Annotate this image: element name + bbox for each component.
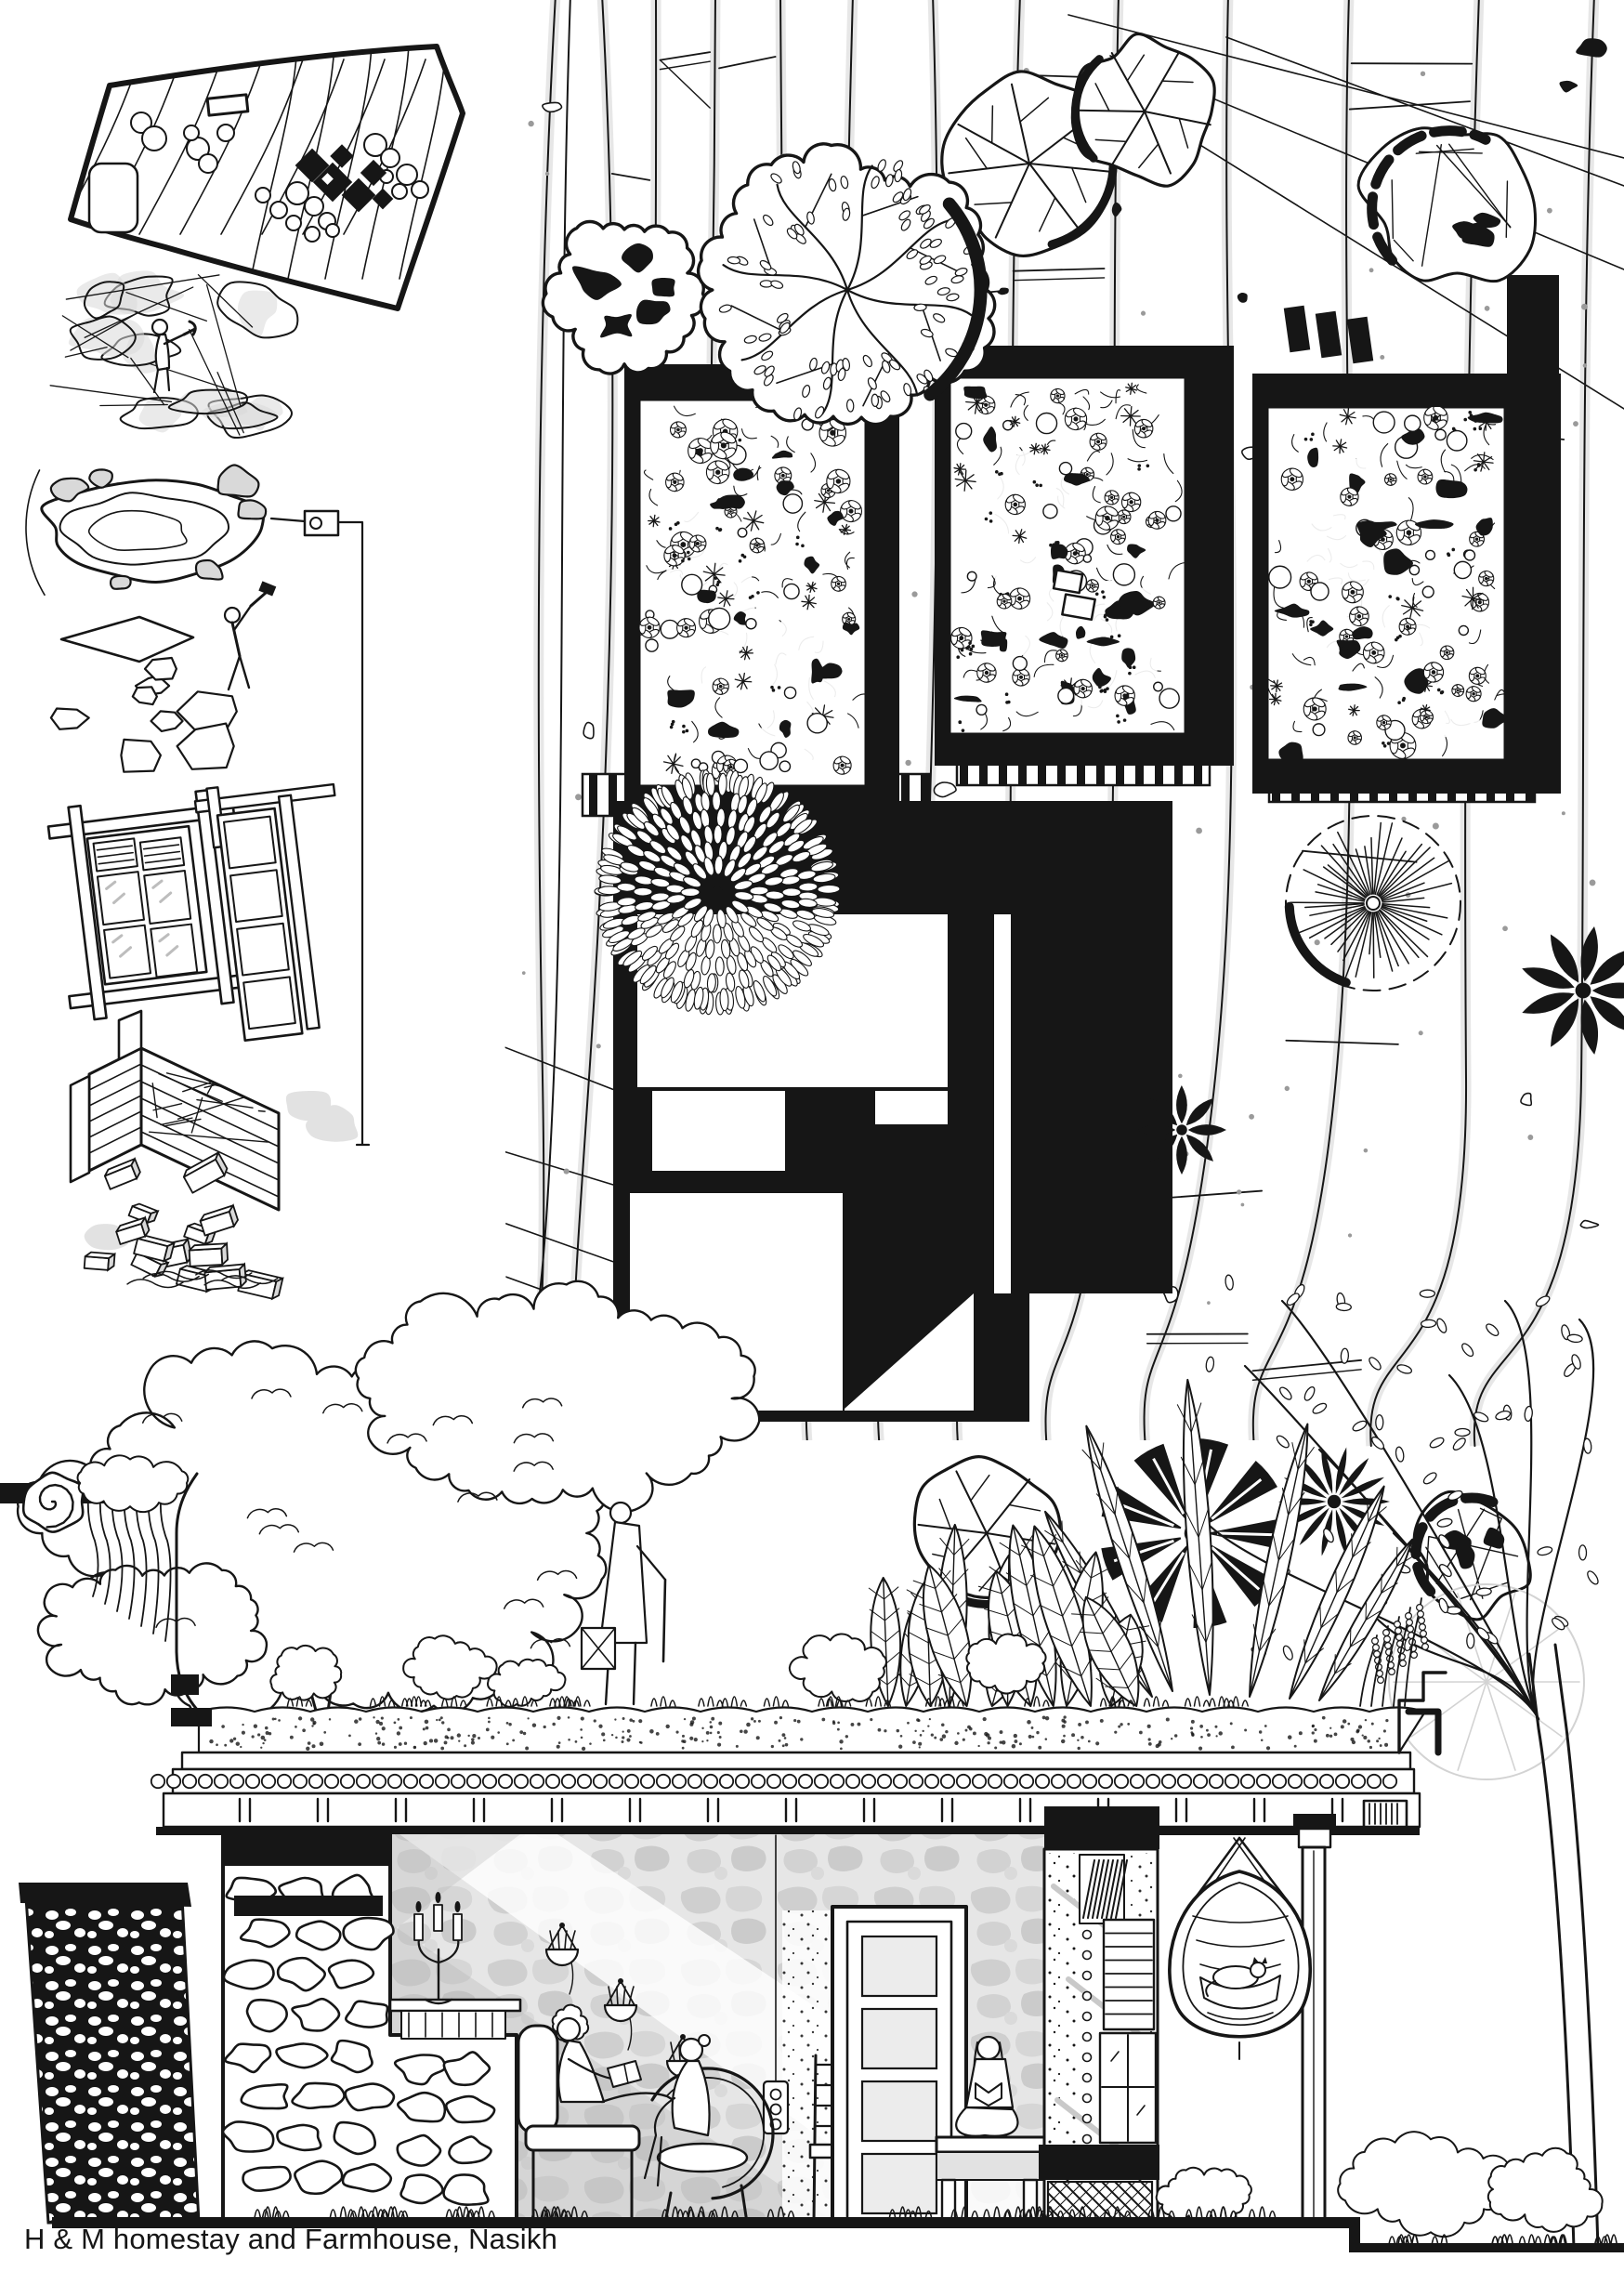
hanging-egg-chair (1170, 1838, 1310, 2059)
key-plan-trees (131, 112, 428, 242)
roof-gardener (582, 1503, 665, 1704)
key-plan-shed (207, 95, 248, 115)
wall-section-cut (1039, 1806, 1159, 2225)
room-a (652, 1091, 785, 1171)
vignette-brick-ruin (71, 1011, 358, 1300)
plan-tree-branching (699, 144, 995, 425)
vignette-stonework (51, 581, 276, 771)
retaining-wall (19, 1883, 199, 2223)
plan-tree-dense (543, 221, 704, 374)
plan-tree-faceted (1358, 128, 1535, 282)
architectural-drawing-page: H & M homestay and Farmhouse, Nasikh (0, 0, 1624, 2284)
caption: H & M homestay and Farmhouse, Nasikh (24, 2223, 557, 2256)
plan-tree-dark (1522, 926, 1624, 1055)
homestay-farmhouse-illustration (0, 0, 1624, 2284)
vignette-salvaged-windows (46, 773, 363, 1043)
vignette-pond (26, 465, 266, 595)
field-plot-2 (935, 346, 1234, 766)
porch-column (1293, 1814, 1336, 2223)
plan-tree-dark (1137, 1085, 1226, 1175)
field-plot-1 (624, 364, 899, 816)
key-plan-field (89, 164, 138, 232)
interior-room (19, 1806, 1159, 2225)
field-plot-3 (1252, 374, 1561, 794)
plan-tree-radial (1286, 816, 1460, 991)
key-plan (58, 45, 463, 308)
vignette-excavation (50, 270, 297, 438)
